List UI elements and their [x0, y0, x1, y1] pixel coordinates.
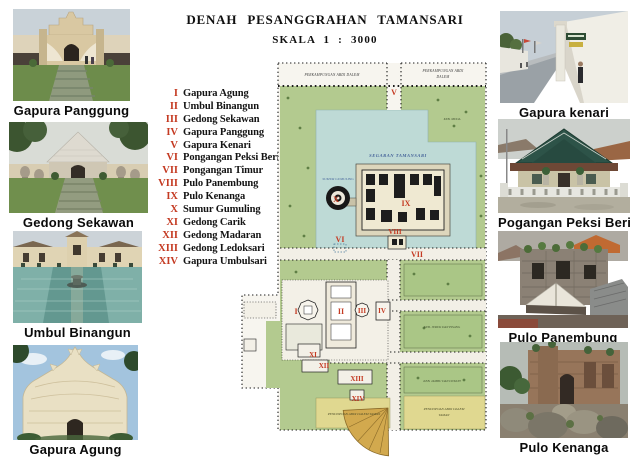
- photo-image-gedong-sekawan: [9, 122, 148, 213]
- legend-numeral: IV: [150, 127, 183, 138]
- map-label-garden-top: KEB. MUDA: [443, 117, 461, 121]
- map-marker-IX: IX: [402, 199, 411, 208]
- map-marker-III: III: [358, 307, 366, 315]
- map-marker-II: II: [338, 307, 344, 316]
- legend-numeral: X: [150, 204, 183, 215]
- page-title: DENAH PESANGGRAHAN TAMANSARI: [150, 12, 500, 28]
- legend-numeral: XIV: [150, 256, 183, 267]
- photo-image-gapura-panggung: [13, 9, 130, 101]
- photo-caption: Pulo Kenanga: [500, 440, 628, 455]
- map-label-kampung-left: PERKAMPUNGAN ABDI DALEM: [303, 73, 360, 77]
- map-marker-VII: VII: [411, 250, 423, 259]
- legend-numeral: VI: [150, 152, 183, 163]
- map-label-pendopo-right-2: TAMAN: [439, 413, 451, 417]
- map-marker-X: X: [333, 195, 339, 204]
- legend-numeral: XIII: [150, 243, 183, 254]
- photo-gapura-kenari: Gapura kenari: [500, 11, 628, 120]
- site-map: PERKAMPUNGAN ABDI DALEM PERKAMPUNGAN ABD…: [238, 56, 492, 460]
- legend-numeral: III: [150, 114, 183, 125]
- photo-gapura-agung: Gapura Agung: [13, 345, 138, 457]
- photo-caption: Gedong Sekawan: [9, 215, 148, 230]
- legend-numeral: XI: [150, 217, 183, 228]
- photo-umbul-binangun: Umbul Binangun: [13, 231, 142, 340]
- legend-numeral: XII: [150, 230, 183, 241]
- photo-pogangan-peksi-beri: Pogangan Peksi Beri: [498, 119, 630, 230]
- map-label-well: SUMUR GUMULING: [322, 177, 354, 181]
- map-label-kampung-right-1: PERKAMPUNGAN ABDI: [422, 69, 465, 73]
- legend-name: Pulo Kenanga: [183, 191, 245, 202]
- legend-numeral: VIII: [150, 178, 183, 189]
- map-marker-XI: XI: [309, 351, 317, 359]
- map-label-pendopo-left: PENDOPOAN ABDI DALEM TAMAN: [327, 412, 381, 416]
- photo-image-umbul-binangun: [13, 231, 142, 323]
- map-label-garden-mid: KEB. JERUK DAN PISANG: [423, 325, 461, 329]
- legend-numeral: V: [150, 140, 183, 151]
- map-scale: SKALA 1 : 3000: [150, 34, 500, 46]
- photo-image-pulo-panembung: [498, 231, 628, 328]
- legend-numeral: IX: [150, 191, 183, 202]
- legend-name: Gedong Carik: [183, 217, 246, 228]
- map-label-pendopo-right-1: PENDOPOAN ABDI DALEM: [423, 407, 465, 411]
- map-marker-VI: VI: [336, 235, 345, 244]
- photo-caption: Umbul Binangun: [13, 325, 142, 340]
- legend-numeral: I: [150, 88, 183, 99]
- legend-numeral: II: [150, 101, 183, 112]
- photo-caption: Gapura Panggung: [13, 103, 130, 118]
- photo-caption: Gapura Agung: [13, 442, 138, 457]
- map-label-kampung-right-2: DALEM: [436, 75, 451, 79]
- photo-image-pogangan-peksi-beri: [498, 119, 630, 213]
- map-marker-XII: XII: [319, 362, 330, 370]
- map-label-lake: SEGARAN TAMANSARI: [369, 153, 427, 158]
- header: DENAH PESANGGRAHAN TAMANSARI SKALA 1 : 3…: [150, 12, 500, 46]
- map-marker-XIII: XIII: [350, 375, 364, 383]
- map-marker-XIV: XIV: [352, 395, 365, 403]
- photo-caption: Pogangan Peksi Beri: [498, 215, 630, 230]
- photo-pulo-kenanga: Pulo Kenanga: [500, 342, 628, 455]
- map-label-garden-low: KEB. JAMBU DAN DUKUH: [422, 379, 461, 383]
- map-garden-block: [404, 264, 482, 296]
- map-marker-V: V: [391, 88, 397, 97]
- photo-image-gapura-agung: [13, 345, 138, 440]
- map-pulo-kenanga: [346, 164, 450, 249]
- photo-image-gapura-kenari: [500, 11, 628, 103]
- photo-pulo-panembung: Pulo Panembung: [498, 231, 628, 345]
- map-garden-block: [404, 315, 482, 348]
- map-marker-VIII: VIII: [388, 228, 402, 236]
- photo-gedong-sekawan: Gedong Sekawan: [9, 122, 148, 230]
- map-marker-I: I: [294, 307, 297, 316]
- page: DENAH PESANGGRAHAN TAMANSARI SKALA 1 : 3…: [0, 0, 640, 468]
- photo-caption: Gapura kenari: [500, 105, 628, 120]
- map-marker-IV: IV: [378, 307, 386, 315]
- photo-image-pulo-kenanga: [500, 342, 628, 438]
- photo-gapura-panggung: Gapura Panggung: [13, 9, 130, 118]
- legend-numeral: VII: [150, 165, 183, 176]
